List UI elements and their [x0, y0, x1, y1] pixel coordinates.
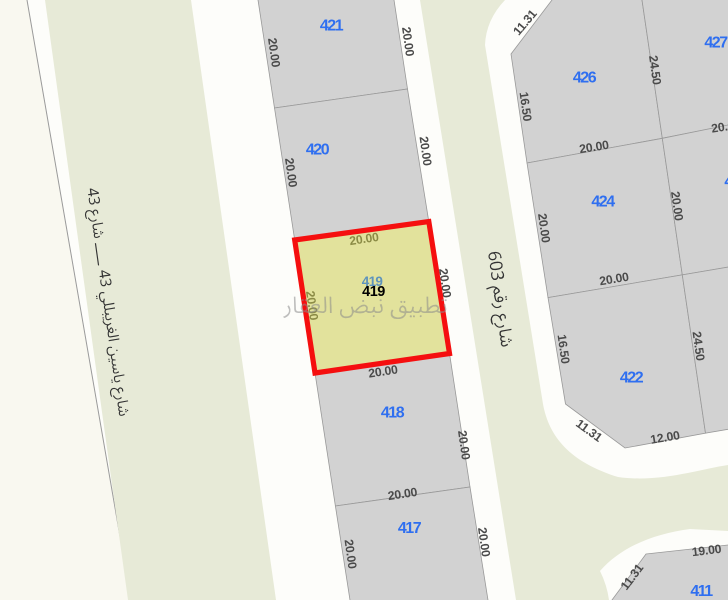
svg-text:425: 425: [724, 174, 728, 191]
svg-text:426: 426: [573, 69, 597, 86]
svg-text:418: 418: [381, 405, 405, 422]
svg-text:422: 422: [620, 370, 644, 387]
svg-text:427: 427: [704, 35, 728, 52]
svg-text:424: 424: [591, 194, 615, 211]
svg-text:421: 421: [320, 17, 344, 34]
svg-text:417: 417: [398, 520, 422, 537]
svg-text:419: 419: [362, 284, 385, 300]
svg-text:411: 411: [690, 583, 713, 600]
svg-text:420: 420: [306, 141, 330, 158]
